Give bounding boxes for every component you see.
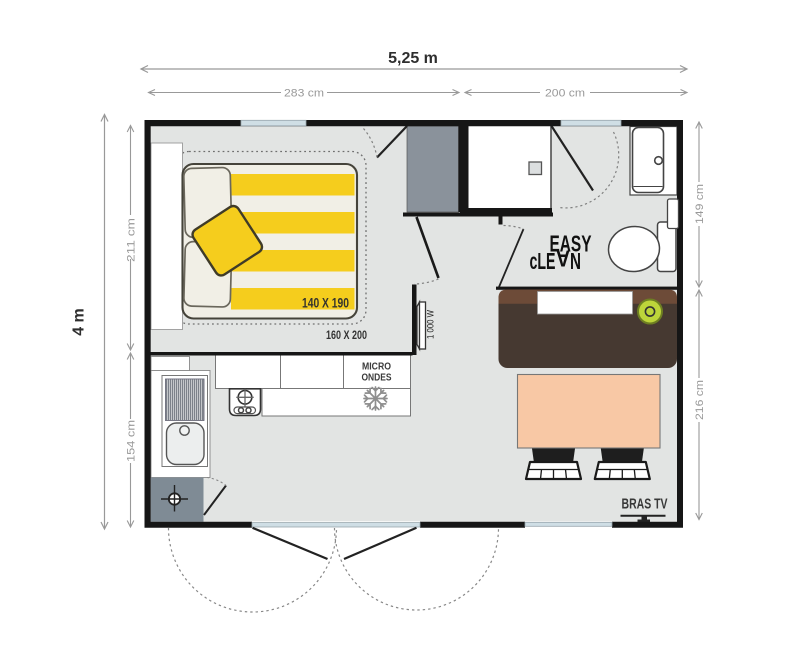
svg-text:A: A: [556, 246, 570, 272]
svg-text:160 X 200: 160 X 200: [326, 330, 367, 342]
svg-text:MICRO: MICRO: [362, 362, 391, 373]
svg-text:216 cm: 216 cm: [694, 380, 706, 420]
svg-text:ONDES: ONDES: [362, 373, 392, 384]
svg-text:154 cm: 154 cm: [126, 420, 138, 462]
svg-text:1 000 W: 1 000 W: [426, 310, 437, 339]
svg-text:283 cm: 283 cm: [284, 88, 324, 100]
svg-text:BRAS TV: BRAS TV: [622, 497, 668, 513]
svg-text:200 cm: 200 cm: [545, 88, 585, 100]
svg-text:211 cm: 211 cm: [126, 218, 138, 262]
svg-text:4 m: 4 m: [71, 308, 88, 336]
svg-text:cLE: cLE: [530, 248, 556, 274]
svg-text:149 cm: 149 cm: [694, 184, 706, 224]
svg-text:140 X 190: 140 X 190: [302, 296, 349, 311]
svg-text:5,25 m: 5,25 m: [388, 50, 438, 67]
svg-text:N: N: [570, 248, 581, 274]
